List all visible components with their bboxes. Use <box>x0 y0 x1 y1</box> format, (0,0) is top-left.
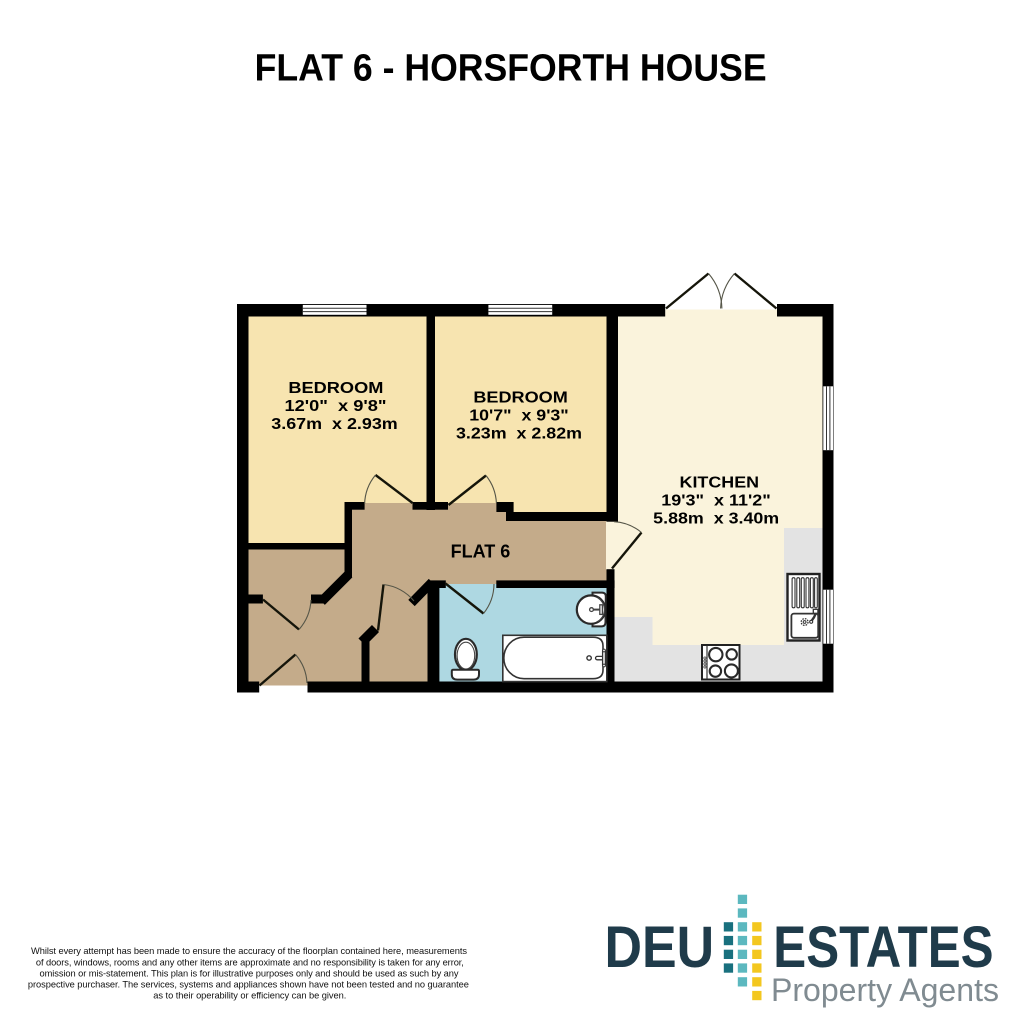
svg-text:ESTATES: ESTATES <box>773 915 993 980</box>
svg-text:19'3" x 11'2": 19'3" x 11'2" <box>661 493 771 510</box>
svg-text:FLAT 6: FLAT 6 <box>451 541 511 561</box>
svg-text:as to their operability or eff: as to their operability or efficiency ca… <box>153 991 346 1001</box>
svg-text:3.23m x 2.82m: 3.23m x 2.82m <box>456 425 582 442</box>
svg-text:omission or mis-statement. Thi: omission or mis-statement. This plan is … <box>40 968 459 978</box>
svg-text:5.88m x 3.40m: 5.88m x 3.40m <box>653 510 779 527</box>
svg-text:10'7" x 9'3": 10'7" x 9'3" <box>469 408 569 425</box>
svg-text:prospective purchaser. The ser: prospective purchaser. The services, sys… <box>28 980 469 990</box>
svg-text:3.67m x 2.93m: 3.67m x 2.93m <box>271 416 398 433</box>
svg-text:Whilst every attempt has been: Whilst every attempt has been made to en… <box>31 946 467 956</box>
svg-text:Property Agents: Property Agents <box>771 972 999 1008</box>
svg-text:BEDROOM: BEDROOM <box>288 380 383 397</box>
svg-text:of doors, windows, rooms and a: of doors, windows, rooms and any other i… <box>36 957 464 967</box>
svg-text:BEDROOM: BEDROOM <box>473 389 568 406</box>
svg-text:FLAT 6 - HORSFORTH HOUSE: FLAT 6 - HORSFORTH HOUSE <box>255 47 767 89</box>
svg-text:KITCHEN: KITCHEN <box>680 474 760 491</box>
svg-text:12'0" x 9'8": 12'0" x 9'8" <box>285 398 387 415</box>
svg-text:DEU: DEU <box>605 915 715 980</box>
